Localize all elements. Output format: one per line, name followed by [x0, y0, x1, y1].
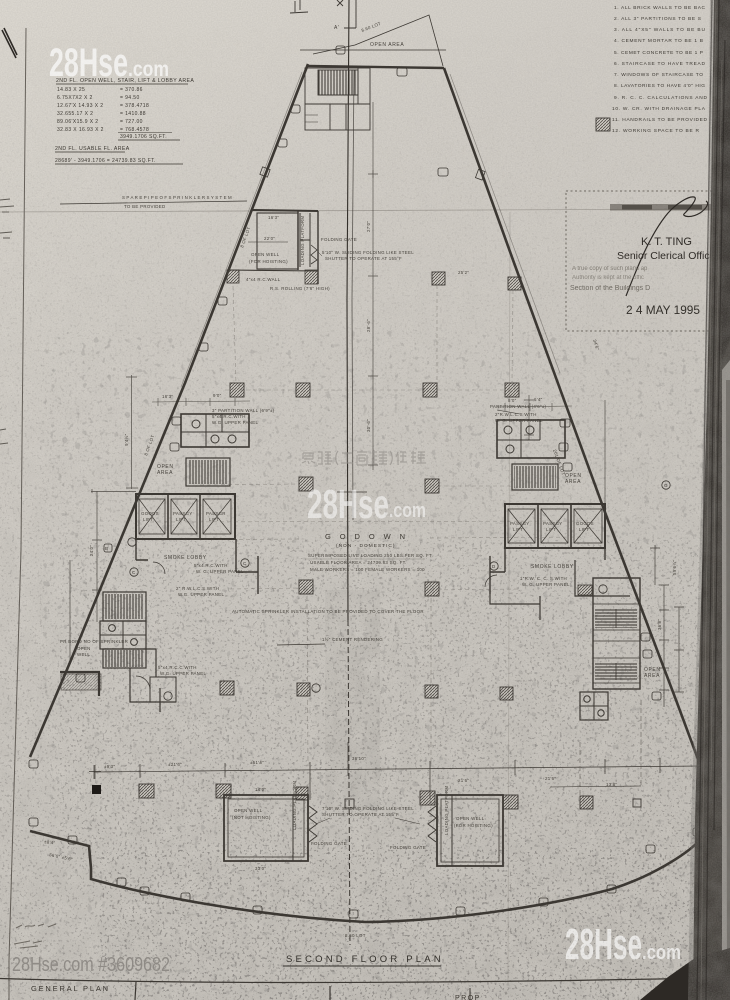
svg-text:5. CEMET CONCRETE TO BE 1 P: 5. CEMET CONCRETE TO BE 1 P: [614, 50, 704, 56]
svg-text:6'4": 6'4": [534, 397, 543, 402]
svg-text:LIFT: LIFT: [579, 527, 589, 532]
svg-text:SUPERIMPOSED LIVE LOADING 250: SUPERIMPOSED LIVE LOADING 250 LBS PER SQ…: [308, 553, 433, 558]
svg-text:FOLDING GATE: FOLDING GATE: [311, 841, 347, 846]
svg-text:9'0": 9'0": [213, 393, 222, 398]
svg-text:3. ALL 4"X5" WALLS TO BE BU: 3. ALL 4"X5" WALLS TO BE BU: [614, 27, 706, 33]
svg-text:OPEN WELL: OPEN WELL: [251, 252, 280, 257]
svg-text:25'2": 25'2": [458, 270, 469, 275]
svg-text:2 4 MAY 1995: 2 4 MAY 1995: [626, 305, 700, 317]
svg-text:LIFT: LIFT: [176, 517, 186, 522]
svg-text:LOADING PLATFORM: LOADING PLATFORM: [292, 781, 297, 830]
svg-text:= 727.00: = 727.00: [120, 119, 143, 125]
svg-text:16'3": 16'3": [162, 394, 173, 399]
svg-text:B: B: [105, 546, 108, 551]
svg-text:= 370.86: = 370.86: [120, 87, 143, 93]
svg-text:±51'4": ±51'4": [250, 760, 264, 765]
svg-text:3" PARTITION WALL (6'9"±): 3" PARTITION WALL (6'9"±): [212, 408, 275, 413]
svg-text:12. WORKING SPACE TO BE R: 12. WORKING SPACE TO BE R: [612, 128, 700, 134]
svg-text:±9'3": ±9'3": [104, 764, 115, 769]
svg-text:5"x4.R.C.WITH: 5"x4.R.C.WITH: [194, 563, 228, 568]
svg-text:.com: .com: [389, 500, 426, 522]
svg-text:3949.1706 SQ.FT.: 3949.1706 SQ.FT.: [120, 134, 167, 140]
svg-text:GOODS: GOODS: [141, 511, 159, 516]
svg-text:28Hse: 28Hse: [49, 41, 128, 85]
svg-text:= 378.4718: = 378.4718: [120, 103, 149, 109]
svg-text:MALE WORKERS = 100 FEMALE WO: MALE WORKERS = 100 FEMALE WORKERS = 100: [310, 567, 425, 572]
svg-text:28Hse.com #3609682: 28Hse.com #3609682: [12, 954, 170, 976]
svg-text:2" R.W.L.C.S.WITH: 2" R.W.L.C.S.WITH: [176, 586, 219, 591]
svg-text:30'-6": 30'-6": [366, 419, 371, 432]
svg-text:14'0": 14'0": [255, 787, 266, 792]
svg-text:33'0": 33'0": [255, 866, 266, 871]
svg-text:WELL: WELL: [77, 652, 90, 657]
svg-text:24'0": 24'0": [89, 545, 94, 556]
svg-text:PARTITION WALL (4'6"±): PARTITION WALL (4'6"±): [490, 404, 547, 409]
svg-text:PASSGY: PASSGY: [173, 511, 193, 516]
svg-text:GOODS: GOODS: [576, 521, 594, 526]
svg-text:32.655.17 X 2: 32.655.17 X 2: [57, 111, 93, 117]
svg-text:7. WINDOWS OF STAIRCASE TO: 7. WINDOWS OF STAIRCASE TO: [614, 72, 704, 78]
svg-text:SHUTTER TO OPERATE AT 155°F: SHUTTER TO OPERATE AT 155°F: [322, 812, 399, 817]
svg-text:12.67'X 14.93 X 2: 12.67'X 14.93 X 2: [57, 103, 103, 109]
svg-text:FOLDING GATE: FOLDING GATE: [321, 237, 357, 242]
svg-text:28'-6": 28'-6": [366, 319, 371, 332]
svg-text:R.S. ROLLING (7'6" HIGH): R.S. ROLLING (7'6" HIGH): [270, 286, 330, 291]
svg-text:USABLE FLOOR AREA = 24739.83: USABLE FLOOR AREA = 24739.83 SQ. FT.: [310, 560, 407, 565]
svg-text:14.83 X 25: 14.83 X 25: [57, 87, 85, 93]
svg-text:TO BE PROVIDED: TO BE PROVIDED: [124, 204, 165, 209]
svg-text:AREA: AREA: [644, 673, 660, 679]
svg-text:W.G. UPPER PANEL: W.G. UPPER PANEL: [212, 420, 258, 425]
svg-text:= 1410.88: = 1410.88: [120, 111, 146, 117]
svg-text:K. T. TING: K. T. TING: [641, 236, 692, 248]
svg-text:= 94.50: = 94.50: [120, 95, 140, 101]
svg-text:4"x4 R.C.WALL: 4"x4 R.C.WALL: [246, 277, 281, 282]
svg-text:W. G. UPPER PANEL: W. G. UPPER PANEL: [495, 418, 543, 423]
svg-text:(NOT HOISTING): (NOT HOISTING): [232, 815, 271, 820]
svg-text:27'0": 27'0": [366, 221, 371, 232]
svg-text:7'10" W. SLIDING FOLDING LIKE: 7'10" W. SLIDING FOLDING LIKE STEEL: [322, 806, 414, 811]
svg-text:4. CEMENT MORTAR TO BE 1 B: 4. CEMENT MORTAR TO BE 1 B: [614, 38, 704, 44]
svg-text:5'10" W. SLIDING FOLDING LIKE: 5'10" W. SLIDING FOLDING LIKE STEEL: [322, 250, 414, 255]
svg-text:LIFT: LIFT: [143, 517, 153, 522]
svg-text:FOLDING GATE: FOLDING GATE: [390, 845, 426, 850]
svg-text:6.75X7X2 X 2: 6.75X7X2 X 2: [57, 95, 93, 101]
svg-text:AUTOMATIC SPRINKLER INSTALLA: AUTOMATIC SPRINKLER INSTALLATION TO BE P…: [232, 609, 424, 614]
svg-text:G: G: [664, 483, 668, 488]
svg-text:28689' - 3949.1706 = 24739.8: 28689' - 3949.1706 = 24739.83 SQ.FT.: [55, 158, 156, 164]
svg-text:22'0": 22'0": [264, 236, 275, 241]
svg-text:1. ALL BRICK WALLS TO BE BAC: 1. ALL BRICK WALLS TO BE BAC: [614, 5, 706, 11]
svg-text:28Hse: 28Hse: [307, 481, 389, 527]
svg-text:11. HANDRAILS TO BE PROVIDED: 11. HANDRAILS TO BE PROVIDED: [612, 117, 708, 123]
svg-text:Authority is kept at the: Authority is kept at the offic: [572, 275, 644, 281]
svg-text:GENERAL PLAN: GENERAL PLAN: [31, 984, 110, 993]
svg-text:LOADING PLATFORM: LOADING PLATFORM: [444, 786, 449, 835]
svg-text:SECOND FLOOR PLAN: SECOND FLOOR PLAN: [286, 954, 444, 965]
svg-text:32.83 X 16.93 X 2: 32.83 X 16.93 X 2: [57, 127, 104, 133]
svg-text:A true copy of such plans: A true copy of such plans ap: [572, 266, 648, 272]
svg-text:OPEN WELL: OPEN WELL: [456, 816, 485, 821]
svg-text:Section of the Buildings D: Section of the Buildings D: [570, 285, 650, 292]
svg-text:8.60 LOT: 8.60 LOT: [345, 933, 366, 938]
svg-text:.com: .com: [642, 942, 681, 964]
svg-text:89.06'X15.9 X 2: 89.06'X15.9 X 2: [57, 119, 98, 125]
svg-text:AREA: AREA: [157, 470, 173, 476]
svg-text:OPEN: OPEN: [77, 646, 91, 651]
svg-text:= 768.4578: = 768.4578: [120, 127, 149, 133]
svg-text:SHUTTER TO OPERATE AT 155°F: SHUTTER TO OPERATE AT 155°F: [325, 256, 402, 261]
svg-text:W. G. UPPER PANEL: W. G. UPPER PANEL: [522, 582, 570, 587]
svg-text:21'6": 21'6": [458, 778, 469, 783]
svg-text:Senior Clerical Office: Senior Clerical Office: [617, 250, 716, 262]
svg-text:PROP: PROP: [455, 995, 481, 1000]
svg-text:59'6½": 59'6½": [672, 560, 677, 575]
svg-text:W.G. UPPER PANEL: W.G. UPPER PANEL: [160, 671, 206, 676]
svg-text:S P A R E P I P E O F S P R: S P A R E P I P E O F S P R I N K L E R …: [122, 195, 232, 200]
svg-text:(FOR HOISTING): (FOR HOISTING): [454, 823, 493, 828]
svg-text:36'10": 36'10": [352, 756, 366, 761]
svg-text:(NON - DOMESTIC): (NON - DOMESTIC): [336, 543, 395, 549]
svg-text:10. W. CR. WITH DRAINAGE PLA: 10. W. CR. WITH DRAINAGE PLA: [612, 106, 706, 112]
svg-text:1"R.W. C. C. S.WITH: 1"R.W. C. C. S.WITH: [520, 576, 567, 581]
svg-text:2ND FL. USABLE FL. AREA: 2ND FL. USABLE FL. AREA: [55, 146, 130, 152]
svg-text:LIFT: LIFT: [209, 517, 219, 522]
svg-text:AREA: AREA: [565, 479, 581, 485]
svg-text:6. STAIRCASE TO HAVE TREAD: 6. STAIRCASE TO HAVE TREAD: [614, 61, 706, 67]
svg-text:21'6": 21'6": [545, 776, 556, 781]
svg-text:9'4½": 9'4½": [124, 433, 129, 446]
svg-text:1½" CEMENT RENDERING: 1½" CEMENT RENDERING: [322, 637, 383, 642]
svg-text:A': A': [334, 25, 340, 31]
svg-text:SMOKE LOBBY: SMOKE LOBBY: [164, 555, 207, 561]
svg-text:LIFT: LIFT: [513, 527, 523, 532]
svg-text:LIFT: LIFT: [546, 527, 556, 532]
svg-text:OPEN AREA: OPEN AREA: [370, 42, 404, 48]
svg-text:PASSGY: PASSGY: [543, 521, 563, 526]
svg-text:SMOKE LOBBY: SMOKE LOBBY: [531, 564, 574, 570]
svg-text:36'8": 36'8": [657, 619, 662, 630]
svg-text:2. ALL 3" PARTITIONS TO BE S: 2. ALL 3" PARTITIONS TO BE S: [614, 16, 702, 22]
svg-text:8'0": 8'0": [508, 398, 517, 403]
svg-text:16'3": 16'3": [268, 215, 279, 220]
svg-text:.com: .com: [128, 58, 169, 81]
svg-text:LOADING PLATFORM: LOADING PLATFORM: [300, 216, 305, 265]
svg-text:9. R. C. C. CALCULATIONS AND: 9. R. C. C. CALCULATIONS AND: [614, 95, 708, 101]
svg-text:PASSGR: PASSGR: [206, 511, 226, 516]
svg-text:±21'6": ±21'6": [168, 762, 182, 767]
svg-text:5"x4.R.C.WITH: 5"x4.R.C.WITH: [212, 414, 246, 419]
svg-text:OPEN WELL: OPEN WELL: [234, 808, 263, 813]
svg-text:5"x4.R.C.C WITH: 5"x4.R.C.C WITH: [158, 665, 197, 670]
svg-text:W.G. UPPER PANEL: W.G. UPPER PANEL: [178, 592, 224, 597]
svg-text:28Hse: 28Hse: [565, 920, 642, 969]
svg-text:PASSGY: PASSGY: [510, 521, 530, 526]
svg-text:W. G. UPPER PANEL: W. G. UPPER PANEL: [196, 569, 244, 574]
svg-text:2"R.W.L.C.S WITH: 2"R.W.L.C.S WITH: [495, 412, 537, 417]
svg-text:(FOR HOISTING): (FOR HOISTING): [249, 259, 288, 264]
svg-text:8. LAVATORIES TO HAVE 4'0" HIG: 8. LAVATORIES TO HAVE 4'0" HIG: [614, 83, 706, 89]
